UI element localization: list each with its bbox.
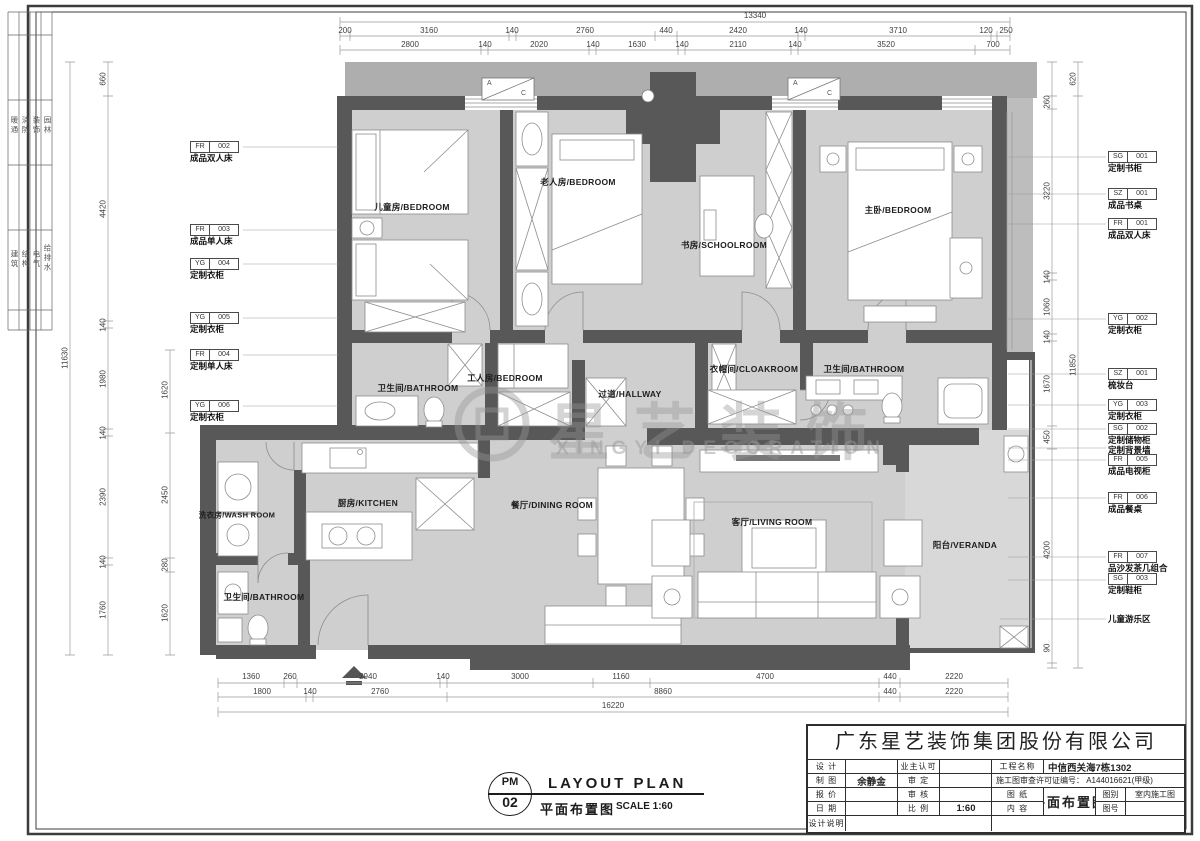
- tag-num: 003: [1128, 574, 1156, 584]
- tb-project-value: 中信西关海7栋1302: [1044, 760, 1184, 774]
- dim-label: 3520: [877, 40, 895, 49]
- tb-scale-value: 1:60: [940, 802, 992, 816]
- discipline-label: 园林: [42, 116, 53, 135]
- tag-label: 定制衣柜: [1108, 410, 1142, 422]
- tag-num: 001: [1128, 152, 1156, 162]
- tag-num: 006: [210, 401, 238, 411]
- tb-scale-label: 比 例: [898, 802, 940, 816]
- dim-label: 2940: [359, 672, 377, 681]
- tag-code: FR: [1109, 219, 1128, 229]
- dim-label: 90: [1043, 644, 1052, 653]
- ac-letter-a: A: [487, 80, 492, 87]
- tag-label: 成品餐桌: [1108, 503, 1142, 515]
- tb-check-label: 审 核: [898, 788, 940, 802]
- dim-label: 2760: [576, 26, 594, 35]
- dim-label: 440: [659, 26, 672, 35]
- tag-code: YG: [1109, 314, 1128, 324]
- discipline-label: 给排水: [42, 244, 53, 273]
- tb-design-value: [846, 760, 898, 774]
- room-label-bath2: 卫生间/BATHROOM: [824, 363, 905, 375]
- tb-check-value: [940, 788, 992, 802]
- tag-num: 005: [1128, 455, 1156, 465]
- room-label-bath3: 卫生间/BATHROOM: [224, 591, 305, 603]
- dim-label: 140: [436, 672, 449, 681]
- room-label-kids: 儿童房/BEDROOM: [374, 201, 450, 213]
- dim-label: 2110: [729, 40, 746, 49]
- dim-label: 2420: [729, 26, 747, 35]
- dim-label: 1060: [1043, 298, 1052, 316]
- tb-project-label: 工程名称: [992, 760, 1044, 774]
- tag-num: 002: [210, 142, 238, 152]
- tag-label: 定制鞋柜: [1108, 584, 1142, 596]
- dim-label: 140: [675, 40, 688, 49]
- tb-type-value: 室内施工图: [1126, 788, 1184, 802]
- dim-label: 3160: [420, 26, 438, 35]
- dim-label: 2220: [945, 672, 963, 681]
- dim-label: 140: [794, 26, 807, 35]
- sheet-title-cn: 平面布置图: [540, 799, 615, 818]
- dim-label: 660: [99, 72, 108, 85]
- dim-label: 4200: [1043, 541, 1052, 559]
- dim-label: 200: [338, 26, 351, 35]
- tb-owner-label: 业主认可: [898, 760, 940, 774]
- title-underline: [488, 793, 704, 795]
- company-name: 广东星艺装饰集团股份有限公司: [808, 726, 1184, 760]
- dim-label: 1760: [99, 601, 108, 619]
- dim-label: 140: [1043, 330, 1052, 343]
- dim-label: 140: [788, 40, 801, 49]
- tb-note-value: [846, 816, 992, 831]
- tb-permit: 施工图审查许可证编号： A144016621(甲级): [992, 774, 1184, 788]
- dim-label: 2760: [371, 687, 389, 696]
- dim-label: 2800: [401, 40, 419, 49]
- room-label-veranda: 阳台/VERANDA: [933, 539, 997, 551]
- title-block: 广东星艺装饰集团股份有限公司 设 计 业主认可 制 图 余静金 审 定 报 价 …: [806, 724, 1186, 834]
- tag-code: YG: [191, 313, 210, 323]
- tag-num: 001: [1128, 369, 1156, 379]
- dim-label: 1160: [612, 672, 629, 681]
- tag-code: SG: [1109, 424, 1128, 434]
- tag-label: 梳妆台: [1108, 379, 1134, 391]
- dim-label: 4420: [99, 200, 108, 218]
- dim-label: 620: [1069, 72, 1078, 85]
- dim-label: 4700: [756, 672, 774, 681]
- dim-label: 2390: [99, 488, 108, 506]
- dim-label: 13340: [744, 11, 766, 20]
- dim-label: 2020: [530, 40, 548, 49]
- tb-content-label: 内 容: [992, 802, 1044, 816]
- room-label-cloak: 衣帽间/CLOAKROOM: [710, 363, 798, 375]
- tag-label: 成品双人床: [190, 152, 233, 164]
- ac-letter-c: C: [521, 90, 526, 97]
- tb-no-value: [1126, 802, 1184, 816]
- elevation-marker-icon: [642, 90, 654, 102]
- room-label-elder: 老人房/BEDROOM: [540, 176, 616, 188]
- sheet-title-en: LAYOUT PLAN: [548, 775, 686, 792]
- dim-label: 440: [883, 672, 896, 681]
- tb-approve-label: 审 定: [898, 774, 940, 788]
- plan-symbol-number: 02: [489, 792, 531, 812]
- tag-label: 成品书桌: [1108, 199, 1142, 211]
- drawing-sheet: 暖通 消防 装饰 园林 建筑 结构 电气 给排水 A C A C 13340 2…: [0, 0, 1200, 841]
- dim-label: 16220: [602, 701, 624, 710]
- tb-content-value: 平面布置图: [1044, 788, 1096, 816]
- tag-code: FR: [191, 350, 210, 360]
- plan-symbol-code: PM: [489, 773, 531, 792]
- dim-label: 11850: [1069, 354, 1078, 376]
- tag-label: 定制衣柜: [1108, 324, 1142, 336]
- watermark-en: XINGYI DECORATION: [556, 438, 888, 460]
- dim-label: 1670: [1043, 375, 1052, 393]
- dim-label: 440: [883, 687, 896, 696]
- dim-label: 1980: [99, 370, 108, 388]
- dim-label: 280: [161, 558, 170, 571]
- discipline-label: 装饰: [31, 116, 42, 135]
- tag-code: YG: [191, 401, 210, 411]
- room-label-worker: 工人房/BEDROOM: [467, 372, 543, 384]
- dim-label: 1630: [628, 40, 646, 49]
- tag-label: 成品电视柜: [1108, 465, 1151, 477]
- dim-label: 140: [303, 687, 316, 696]
- dim-label: 1620: [161, 604, 170, 622]
- room-label-kitchen: 厨房/KITCHEN: [338, 497, 398, 509]
- note-play-area: 儿童游乐区: [1108, 613, 1151, 625]
- dim-label: 3220: [1043, 182, 1052, 200]
- tag-code: FR: [191, 225, 210, 235]
- discipline-label: 结构: [20, 250, 31, 269]
- room-label-dining: 餐厅/DINING ROOM: [511, 499, 593, 511]
- tag-num: 007: [1128, 552, 1156, 562]
- tag-num: 005: [210, 313, 238, 323]
- tag-code: SZ: [1109, 189, 1128, 199]
- tb-owner-value: [940, 760, 992, 774]
- dim-label: 450: [1043, 430, 1052, 443]
- room-label-bath1: 卫生间/BATHROOM: [378, 382, 459, 394]
- dim-label: 140: [99, 426, 108, 439]
- tb-type-label: 图别: [1096, 788, 1126, 802]
- dim-label: 120: [979, 26, 992, 35]
- dim-label: 140: [478, 40, 491, 49]
- tag-label: 成品双人床: [1108, 229, 1151, 241]
- tag-code: SG: [1109, 152, 1128, 162]
- dim-label: 8860: [654, 687, 672, 696]
- room-label-living: 客厅/LIVING ROOM: [732, 516, 813, 528]
- tb-date-value: [846, 802, 898, 816]
- tag-code: FR: [191, 142, 210, 152]
- tb-quote-value: [846, 788, 898, 802]
- dim-label: 140: [1043, 270, 1052, 283]
- dim-label: 2220: [945, 687, 963, 696]
- ac-letter-a: A: [793, 80, 798, 87]
- room-label-master: 主卧/BEDROOM: [865, 204, 932, 216]
- tag-num: 001: [1128, 219, 1156, 229]
- tag-num: 004: [210, 350, 238, 360]
- tag-num: 001: [1128, 189, 1156, 199]
- room-label-study: 书房/SCHOOLROOM: [681, 239, 767, 251]
- dim-label: 2450: [161, 486, 170, 504]
- dim-label: 3000: [511, 672, 529, 681]
- tag-code: SG: [1109, 574, 1128, 584]
- discipline-label: 消防: [20, 116, 31, 135]
- tag-label: 成品单人床: [190, 235, 233, 247]
- tag-label: 定制衣柜: [190, 269, 224, 281]
- tb-sheet-label: 图 纸: [992, 788, 1044, 802]
- dim-label: 1360: [242, 672, 260, 681]
- tag-code: FR: [1109, 493, 1128, 503]
- dim-label: 260: [283, 672, 296, 681]
- tb-design-label: 设 计: [808, 760, 846, 774]
- tag-num: 006: [1128, 493, 1156, 503]
- room-label-wash: 洗衣房/WASH ROOM: [199, 510, 275, 521]
- dim-label: 700: [986, 40, 999, 49]
- tag-code: SZ: [1109, 369, 1128, 379]
- dim-label: 140: [99, 318, 108, 331]
- tag-code: FR: [1109, 455, 1128, 465]
- tag-num: 003: [210, 225, 238, 235]
- dim-label: 140: [586, 40, 599, 49]
- dim-label: 1800: [253, 687, 271, 696]
- dim-label: 260: [1043, 95, 1052, 108]
- dim-label: 1620: [161, 381, 170, 399]
- dim-label: 140: [505, 26, 518, 35]
- tag-num: 002: [1128, 424, 1156, 434]
- tb-no-label: 图号: [1096, 802, 1126, 816]
- tag-num: 002: [1128, 314, 1156, 324]
- tb-bottom-empty: [992, 816, 1184, 831]
- dim-label: 11630: [61, 347, 70, 369]
- tb-date-label: 日 期: [808, 802, 846, 816]
- tag-label: 定制单人床: [190, 360, 233, 372]
- tag-label: 定制衣柜: [190, 323, 224, 335]
- tag-label: 定制衣柜: [190, 411, 224, 423]
- discipline-label: 电气: [31, 250, 42, 269]
- tb-quote-label: 报 价: [808, 788, 846, 802]
- tag-label: 定制书柜: [1108, 162, 1142, 174]
- tag-code: YG: [1109, 400, 1128, 410]
- discipline-table: [8, 12, 52, 330]
- tag-num: 004: [210, 259, 238, 269]
- dim-label: 250: [999, 26, 1012, 35]
- tb-draw-label: 制 图: [808, 774, 846, 788]
- tb-note-label: 设计说明: [808, 816, 846, 831]
- tag-num: 003: [1128, 400, 1156, 410]
- tb-approve-value: [940, 774, 992, 788]
- tag-code: FR: [1109, 552, 1128, 562]
- tag-code: YG: [191, 259, 210, 269]
- discipline-label: 暖通: [9, 116, 20, 135]
- tb-draw-value: 余静金: [846, 774, 898, 788]
- dim-label: 140: [99, 555, 108, 568]
- sheet-scale: SCALE 1:60: [616, 801, 673, 812]
- ac-letter-c: C: [827, 90, 832, 97]
- dim-label: 3710: [889, 26, 907, 35]
- discipline-label: 建筑: [9, 250, 20, 269]
